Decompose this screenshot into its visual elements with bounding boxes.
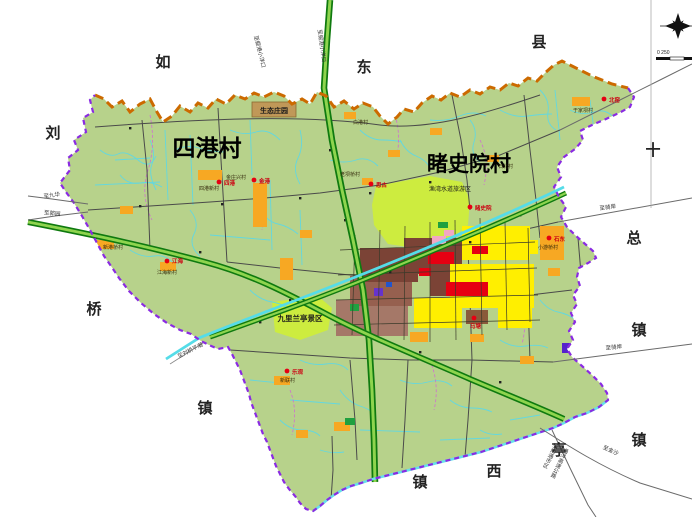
adjacent-left-1: 刘	[45, 124, 60, 142]
zone-lanting-scenic: 九里兰亭景区	[277, 313, 323, 323]
adjacent-right-2: 总	[626, 229, 641, 247]
adjacent-top-1: 如	[155, 53, 170, 71]
block-label-xinlian: 新联村	[280, 377, 295, 384]
zone-yuwan-scenic: 渔湾水道旅游区	[429, 185, 471, 193]
adjacent-top-3: 县	[531, 34, 546, 51]
dot-label-shidong: 石东	[553, 235, 566, 243]
village-planning-map: 四港村 睹史院村 如 东 县 刘 桥 镇 十 总 镇 镇 西 亭 镇 生态庄园 …	[0, 0, 692, 517]
block-label-jianghaixincun: 江海新村	[157, 269, 177, 276]
dot-label-jianghai: 江海	[172, 257, 184, 265]
dot-label-leguan: 乐观	[292, 368, 304, 376]
block-label-xiaoyouqiao: 小游桥村	[538, 244, 558, 251]
block-label-laoba: 老坝桥村	[340, 171, 360, 178]
village-name-sigang: 四港村	[173, 135, 242, 161]
adjacent-right-1: 十	[645, 141, 660, 159]
adjacent-left-3: 镇	[197, 399, 212, 417]
village-label-baigang: 白港村	[353, 119, 368, 126]
block-label-sigangxincun: 四港新村	[199, 185, 219, 192]
adjacent-right-3: 镇	[631, 321, 646, 339]
dot-label-sigu: 思古	[376, 181, 388, 189]
dot-label-beiyao: 北窑	[609, 96, 621, 104]
adjacent-bottom-2: 西	[486, 463, 501, 480]
zone-eco-manor: 生态庄园	[260, 106, 288, 115]
dot-label-dushiyuan: 睹史院	[475, 204, 492, 212]
village-label-shibei: 石北村	[498, 163, 513, 170]
adjacent-left-2: 桥	[86, 300, 102, 318]
map-canvas: 四港村 睹史院村 如 东 县 刘 桥 镇 十 总 镇 镇 西 亭 镇 生态庄园 …	[0, 0, 692, 517]
dot-label-matang: 马塘	[470, 322, 482, 330]
block-label-yujiaba: 于家坝村	[573, 107, 593, 114]
block-label-jinzhuang: 金庄兴村	[226, 174, 246, 181]
adjacent-top-2: 东	[356, 58, 371, 76]
adjacent-bottom-1: 镇	[412, 473, 427, 491]
village-label-xingangqiao: 新港桥村	[103, 244, 123, 251]
dot-label-jingang: 金港	[258, 177, 271, 185]
scale-bar-labels: 0 250	[657, 50, 670, 56]
adjacent-bottom-4: 镇	[631, 431, 646, 449]
